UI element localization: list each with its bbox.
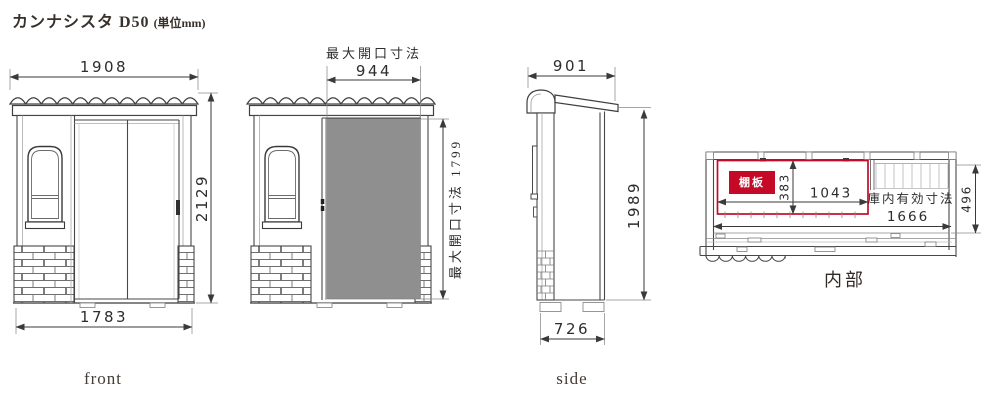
front-roof-width-value: 1908 bbox=[80, 58, 128, 76]
interior-door-tracks bbox=[700, 233, 956, 256]
side-dim-height: 1989 bbox=[606, 108, 651, 301]
shelf-badge-label: 棚板 bbox=[739, 175, 765, 189]
side-base-depth-value: 726 bbox=[554, 320, 590, 338]
side-depth-value: 901 bbox=[553, 57, 589, 75]
interior-dim-shelf-depth: 383 bbox=[778, 161, 794, 215]
interior-open-door-panel bbox=[871, 160, 950, 191]
front-height-value: 2129 bbox=[193, 174, 211, 222]
side-view: 901 1989 726 side bbox=[527, 57, 651, 388]
interior-view-label: 内部 bbox=[824, 270, 866, 290]
door-handle bbox=[176, 200, 180, 215]
front-dim-height: 2129 bbox=[193, 93, 218, 303]
shelf-badge: 棚板 bbox=[729, 171, 775, 194]
inner-width-value: 1666 bbox=[887, 209, 929, 225]
front-view-label: front bbox=[84, 369, 122, 388]
interior-eave-scallops bbox=[706, 256, 785, 262]
opening-caption: 最大開口寸法 bbox=[326, 46, 422, 61]
front-dim-base-width: 1783 bbox=[16, 308, 192, 334]
side-dim-base-depth: 726 bbox=[541, 313, 605, 345]
opening-doorway bbox=[321, 118, 421, 300]
front-shed-drawing bbox=[10, 98, 198, 308]
door-opening-shaded bbox=[327, 119, 421, 300]
diagram-svg: 1908 2129 1783 front bbox=[0, 0, 1000, 400]
interior-view: 棚板 383 1043 庫内有効寸法 1666 496 bbox=[700, 152, 981, 290]
interior-caption: 庫内有効寸法 bbox=[867, 191, 954, 206]
dimension-diagram-page: カンナシスタ D50(単位mm) bbox=[0, 0, 1000, 400]
side-view-label: side bbox=[556, 369, 587, 388]
opening-height-label: 最大開口寸法 1799 bbox=[448, 139, 463, 279]
shelf-depth-value: 383 bbox=[778, 173, 792, 200]
inner-depth-value: 496 bbox=[960, 185, 974, 212]
front-dim-roof-width: 1908 bbox=[10, 58, 198, 90]
interior-dim-inner-width: 1666 bbox=[714, 209, 952, 227]
side-window-profile bbox=[533, 146, 538, 195]
opening-width-value: 944 bbox=[356, 62, 392, 80]
shelf-width-value: 1043 bbox=[810, 186, 852, 202]
front-view: 1908 2129 1783 front bbox=[10, 58, 218, 388]
opening-view: 最大開口寸法 944 最大開口寸法 1799 bbox=[247, 46, 463, 308]
side-shed-drawing bbox=[527, 90, 618, 312]
front-base-width-value: 1783 bbox=[80, 308, 128, 326]
side-height-value: 1989 bbox=[625, 181, 643, 229]
